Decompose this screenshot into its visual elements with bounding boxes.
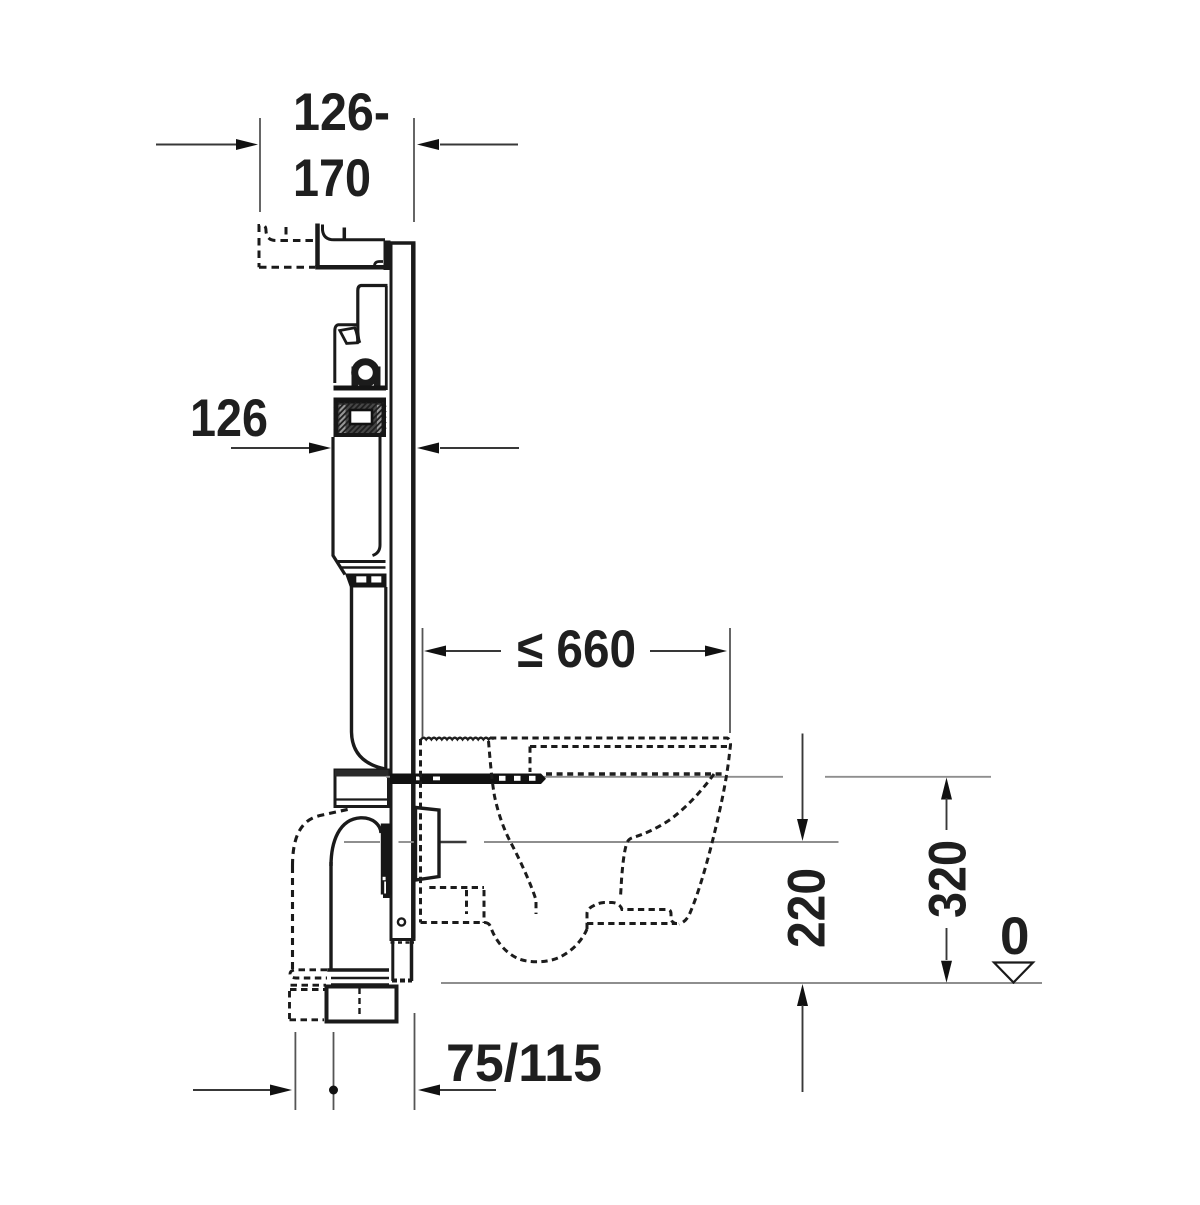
- svg-text:126-: 126-: [293, 83, 390, 142]
- svg-text:170: 170: [293, 149, 371, 208]
- svg-text:75/115: 75/115: [446, 1034, 602, 1093]
- svg-text:126: 126: [190, 389, 268, 448]
- svg-text:220: 220: [778, 868, 837, 948]
- svg-text:320: 320: [919, 840, 978, 918]
- svg-text:≤ 660: ≤ 660: [517, 620, 636, 679]
- svg-text:0: 0: [1000, 907, 1029, 966]
